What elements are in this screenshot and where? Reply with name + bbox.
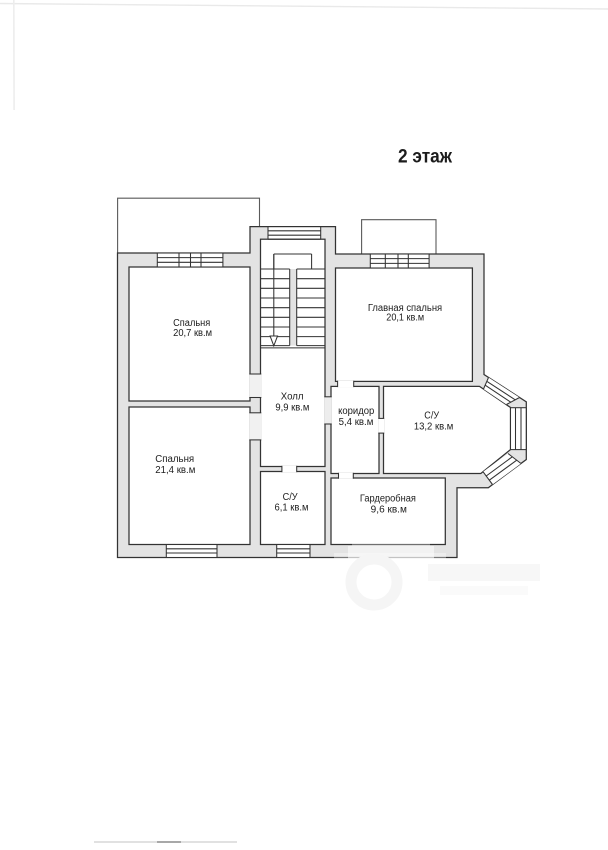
svg-text:Гардеробная: Гардеробная xyxy=(360,492,416,504)
svg-text:20,7 кв.м: 20,7 кв.м xyxy=(173,328,212,339)
svg-text:С/У: С/У xyxy=(424,410,439,421)
svg-text:13,2 кв.м: 13,2 кв.м xyxy=(414,422,454,433)
svg-text:С/У: С/У xyxy=(283,492,299,503)
svg-text:коридор: коридор xyxy=(338,406,375,417)
svg-text:Холл: Холл xyxy=(281,391,304,402)
svg-text:9,6 кв.м: 9,6 кв.м xyxy=(371,504,407,515)
svg-text:2 этаж: 2 этаж xyxy=(398,147,452,168)
svg-text:6,1 кв.м: 6,1 кв.м xyxy=(275,503,309,514)
svg-text:20,1 кв.м: 20,1 кв.м xyxy=(386,312,424,323)
svg-text:Спальня: Спальня xyxy=(155,454,194,465)
svg-text:5,4 кв.м: 5,4 кв.м xyxy=(339,417,374,428)
svg-text:21,4 кв.м: 21,4 кв.м xyxy=(155,465,195,476)
svg-text:9,9 кв.м: 9,9 кв.м xyxy=(275,402,309,413)
